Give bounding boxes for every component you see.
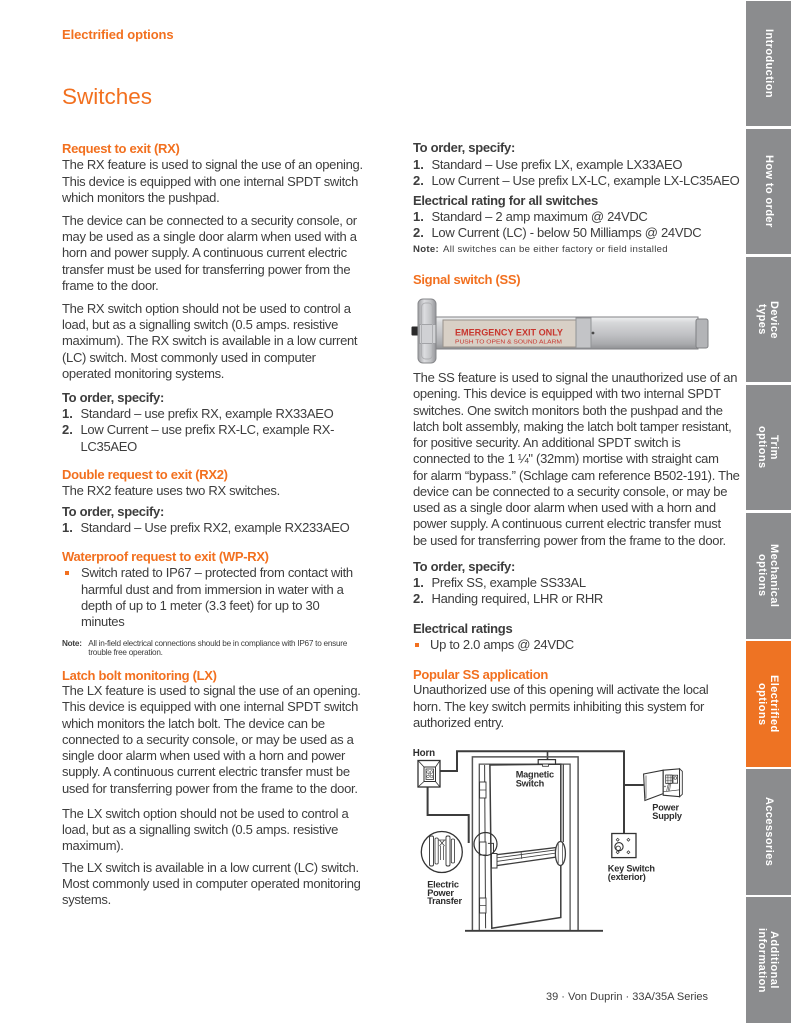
svg-text:Horn: Horn — [413, 748, 435, 759]
svg-text:EMERGENCY EXIT ONLY: EMERGENCY EXIT ONLY — [455, 328, 564, 339]
svg-text:Transfer: Transfer — [427, 896, 462, 906]
svg-text:Supply: Supply — [652, 811, 683, 821]
svg-text:Switch: Switch — [516, 778, 545, 788]
svg-text:(exterior): (exterior) — [608, 872, 646, 882]
svg-text:PUSH TO OPEN & SOUND ALARM: PUSH TO OPEN & SOUND ALARM — [455, 340, 562, 346]
